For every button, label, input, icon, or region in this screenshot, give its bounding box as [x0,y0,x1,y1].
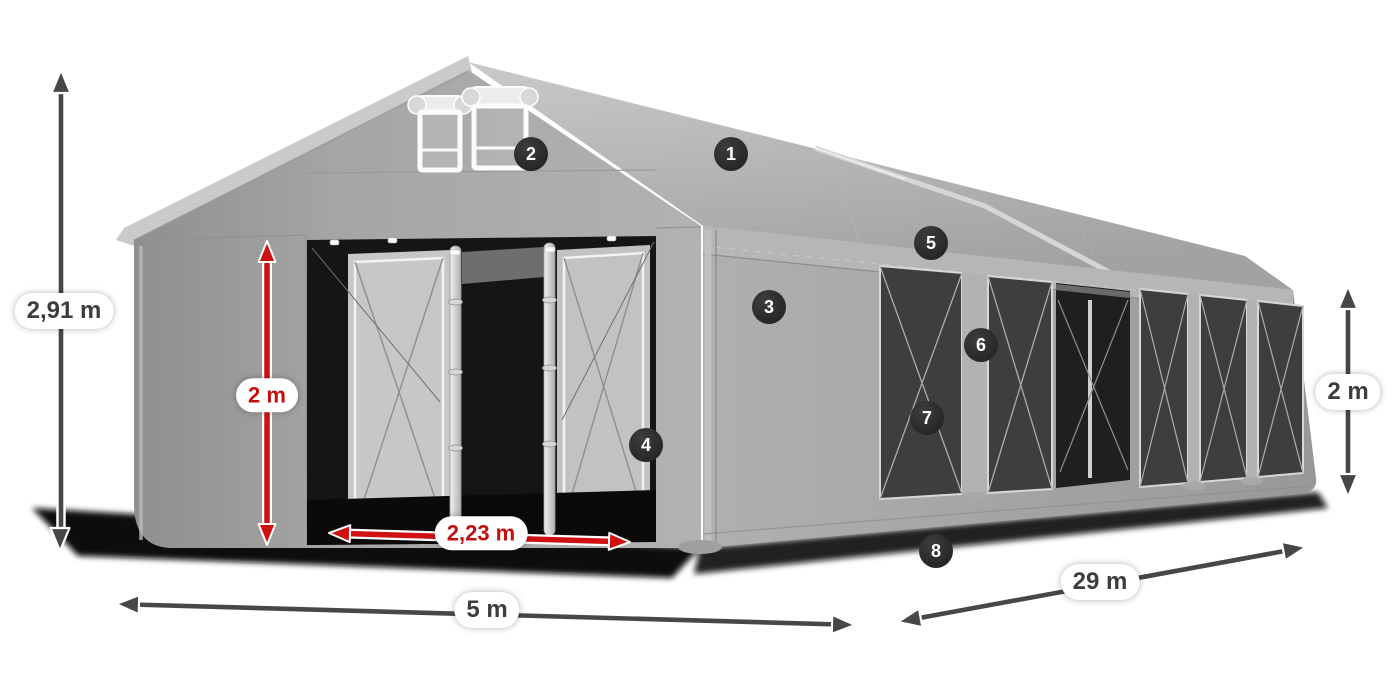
wall-foot [1182,482,1206,491]
side-window [1200,295,1247,482]
dimension-label-width: 5 m [454,592,519,628]
tent-dimension-diagram: 2,91 m 2 m 2,23 m 5 m 29 m 2 m 1 2 3 4 5… [0,0,1400,700]
wall-post [1188,294,1200,487]
side-window [1140,289,1188,487]
feature-marker-7[interactable]: 7 [910,401,944,435]
entrance-pole [543,243,557,535]
roof-vent [408,96,472,170]
dimension-label-total-height: 2,91 m [15,293,114,329]
feature-marker-8[interactable]: 8 [919,534,953,568]
feature-marker-6[interactable]: 6 [964,328,998,362]
dimension-label-side-height: 2 m [1315,374,1380,410]
entrance-pole [449,246,463,538]
feature-marker-1[interactable]: 1 [714,137,748,171]
tent-illustration [0,0,1400,700]
side-window [880,266,962,499]
feature-marker-3[interactable]: 3 [752,290,786,324]
front-entrance-opening [307,236,656,545]
wall-post [962,272,988,499]
side-open-entrance [1056,283,1130,488]
entrance-door-panel-right [557,245,650,530]
feature-marker-5[interactable]: 5 [914,226,948,260]
wall-post [1247,300,1258,482]
dimension-label-length: 29 m [1061,564,1140,600]
dimension-label-entrance-width: 2,23 m [435,516,528,550]
dimension-label-entrance-height: 2 m [236,378,298,412]
wall-foot [961,492,989,502]
side-window [988,276,1052,493]
entrance-door-panel-left [348,250,450,535]
side-window [1258,301,1303,477]
wall-foot [1241,477,1263,485]
wall-foot [678,540,722,554]
feature-marker-4[interactable]: 4 [629,428,663,462]
feature-marker-2[interactable]: 2 [514,137,548,171]
